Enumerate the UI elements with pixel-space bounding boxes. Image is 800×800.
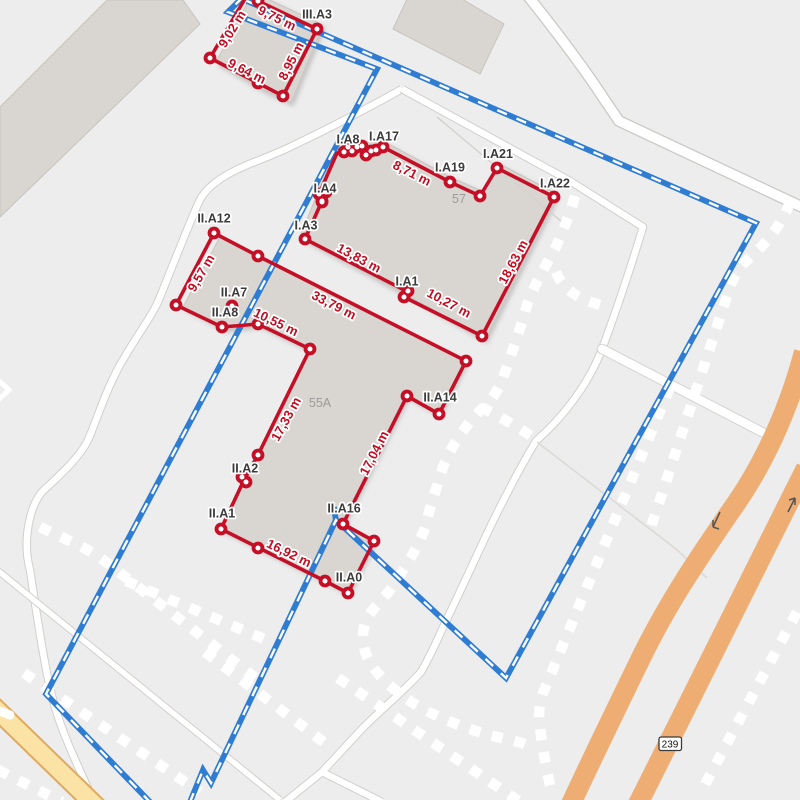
svg-text:II.A14: II.A14 (423, 391, 456, 405)
svg-text:II.A2: II.A2 (232, 462, 258, 476)
svg-text:57: 57 (452, 192, 466, 206)
svg-text:II.A16: II.A16 (327, 502, 360, 516)
svg-text:II.A0: II.A0 (336, 571, 362, 585)
svg-text:II.A1: II.A1 (209, 507, 235, 521)
svg-text:II.A12: II.A12 (197, 212, 230, 226)
svg-text:55A: 55A (309, 396, 332, 410)
svg-text:I.A1: I.A1 (396, 275, 419, 289)
svg-text:II.A8: II.A8 (212, 306, 238, 320)
svg-text:I.A19: I.A19 (435, 161, 465, 175)
svg-text:I.A21: I.A21 (483, 147, 513, 161)
svg-text:II.A7: II.A7 (221, 286, 247, 300)
svg-text:239: 239 (662, 740, 679, 751)
svg-text:I.A8: I.A8 (337, 133, 360, 147)
svg-text:I.A22: I.A22 (540, 177, 570, 191)
svg-text:III.A3: III.A3 (302, 8, 332, 22)
svg-text:I.A17: I.A17 (369, 130, 399, 144)
svg-text:I.A4: I.A4 (314, 182, 337, 196)
svg-text:I.A3: I.A3 (295, 219, 318, 233)
